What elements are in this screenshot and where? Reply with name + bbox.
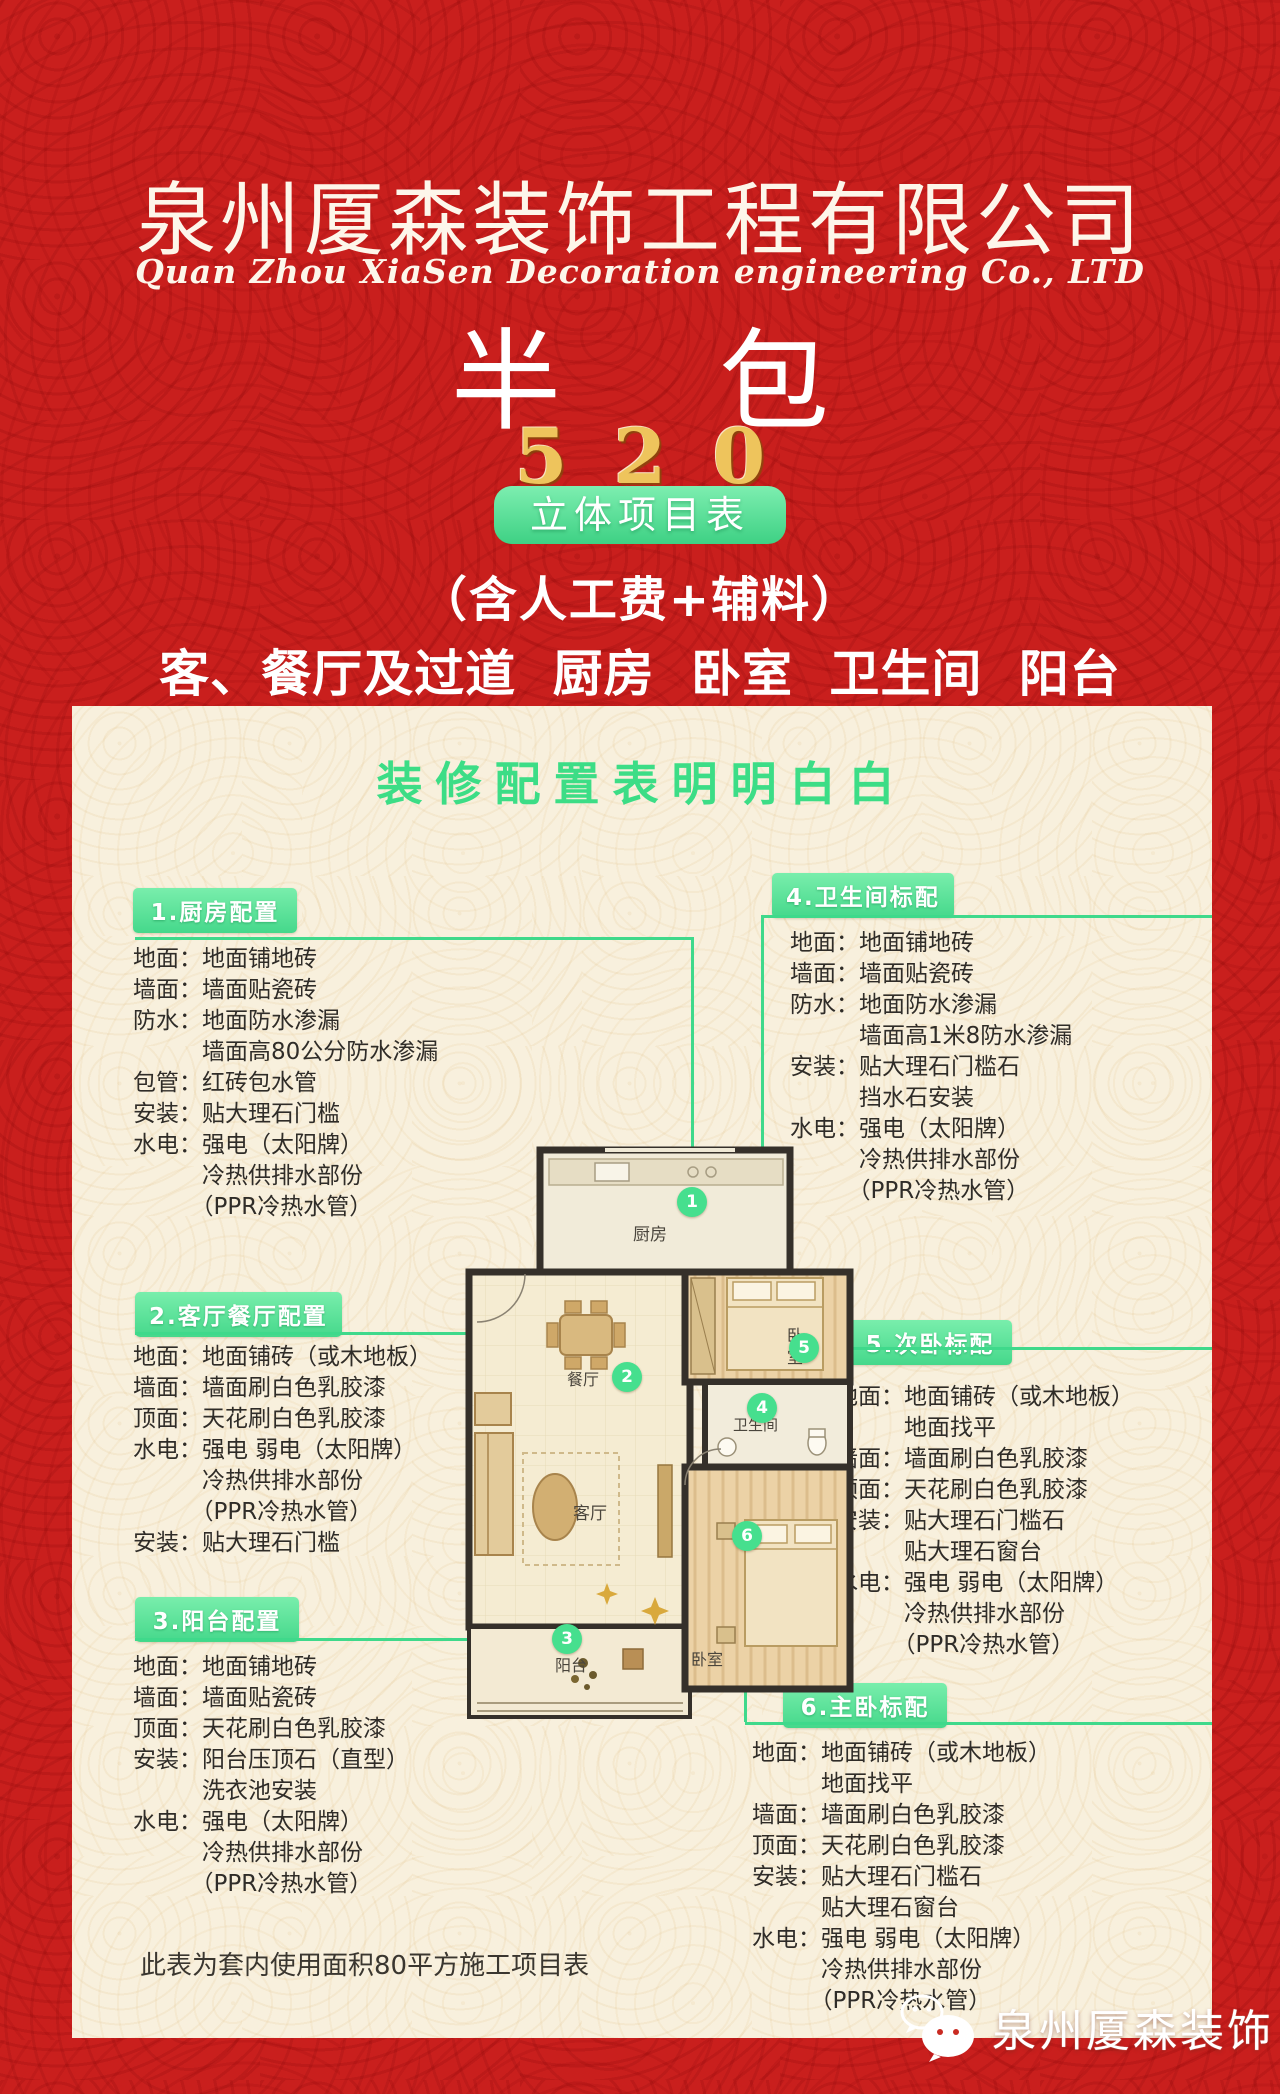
marker-1: 1 — [677, 1187, 707, 1217]
spec-line: 顶面：天花刷白色乳胶漆 — [752, 1831, 1051, 1862]
brand-row: 泉州厦森装饰 — [898, 1992, 1274, 2062]
connector-line-5 — [804, 1347, 1212, 1350]
section-bathroom-badge: 4.卫生间标配 — [772, 873, 954, 918]
spec-line: 冷热供排水部份 — [752, 1955, 1051, 1986]
connector-line-4 — [762, 915, 1212, 918]
spec-line: 冷热供排水部份 — [835, 1599, 1134, 1630]
project-table-badge: 立体项目表 — [0, 486, 1280, 544]
spec-line: 安装：贴大理石门槛 — [133, 1528, 432, 1559]
spec-line: 墙面：墙面贴瓷砖 — [790, 959, 1072, 990]
sofa — [475, 1433, 513, 1555]
coffee-table — [533, 1474, 577, 1540]
spec-line: 地面：地面铺砖（或木地板） — [752, 1738, 1051, 1769]
spec-line: 包管：红砖包水管 — [133, 1068, 438, 1099]
spec-line: 地面：地面铺砖（或木地板） — [133, 1342, 432, 1373]
rooms-line: 客、餐厅及过道 厨房 卧室 卫生间 阳台 — [0, 634, 1280, 706]
section-kitchen-specs: 地面：地面铺地砖 墙面：墙面贴瓷砖 防水：地面防水渗漏 墙面高80公分防水渗漏 … — [133, 944, 438, 1223]
spec-line: 洗衣池安装 — [133, 1776, 409, 1807]
spec-line: 地面：地面铺砖（或木地板） — [835, 1382, 1134, 1413]
spec-line: 顶面：天花刷白色乳胶漆 — [133, 1714, 409, 1745]
spec-line: （PPR冷热水管） — [133, 1497, 432, 1528]
spec-line: 安装：贴大理石门槛石 — [835, 1506, 1134, 1537]
marker-5: 5 — [789, 1333, 819, 1363]
card-title: 装修配置表明明白白 — [72, 748, 1212, 814]
room-label-bedroom1: 卧室 — [691, 1650, 723, 1669]
marker-6: 6 — [732, 1521, 762, 1551]
section-master-specs: 地面：地面铺砖（或木地板） 地面找平 墙面：墙面刷白色乳胶漆 顶面：天花刷白色乳… — [752, 1738, 1051, 2017]
spec-line: 墙面：墙面刷白色乳胶漆 — [752, 1800, 1051, 1831]
spec-line: 顶面：天花刷白色乳胶漆 — [133, 1404, 432, 1435]
spec-line: 地面：地面铺地砖 — [133, 1652, 409, 1683]
spec-line: 水电：强电（太阳牌） — [133, 1807, 409, 1838]
spec-line: 安装：贴大理石门槛石 — [752, 1862, 1051, 1893]
room-label-dining: 餐厅 — [567, 1370, 599, 1389]
section-bedroom2-specs: 地面：地面铺砖（或木地板） 地面找平 墙面：墙面刷白色乳胶漆 顶面：天花刷白色乳… — [835, 1382, 1134, 1661]
armchair — [475, 1393, 511, 1425]
spec-line: 冷热供排水部份 — [133, 1161, 438, 1192]
section-balcony-badge: 3.阳台配置 — [135, 1597, 299, 1642]
spec-line: 地面找平 — [835, 1413, 1134, 1444]
spec-line: （PPR冷热水管） — [835, 1630, 1134, 1661]
tv-cabinet — [658, 1465, 672, 1557]
wechat-icon — [898, 1992, 980, 2062]
spec-line: 水电：强电 弱电（太阳牌） — [835, 1568, 1134, 1599]
spec-line: 墙面高1米8防水渗漏 — [790, 1021, 1072, 1052]
config-card: 装修配置表明明白白 1.厨房配置 地面：地面铺地砖 墙面：墙面贴瓷砖 防水：地面… — [72, 706, 1212, 2038]
room-label-kitchen: 厨房 — [633, 1225, 667, 1245]
spec-line: 墙面高80公分防水渗漏 — [133, 1037, 438, 1068]
section-bathroom-badge-label: 4.卫生间标配 — [772, 873, 954, 918]
spec-line: 墙面：墙面刷白色乳胶漆 — [133, 1373, 432, 1404]
spec-line: 墙面：墙面贴瓷砖 — [133, 1683, 409, 1714]
poster: 泉州厦森装饰工程有限公司 Quan Zhou XiaSen Decoration… — [0, 0, 1280, 2094]
spec-line: 贴大理石窗台 — [835, 1537, 1134, 1568]
kitchen-counter — [549, 1159, 783, 1185]
spec-line: 安装：阳台压顶石（直型） — [133, 1745, 409, 1776]
marker-4: 4 — [747, 1393, 777, 1423]
planter — [623, 1649, 643, 1669]
floor-plan: 厨房 餐厅 卧 室 卫生间 客厅 卧室 阳台 — [455, 1135, 860, 1725]
includes-line: （含人工费+辅料） — [0, 560, 1280, 630]
spec-line: 挡水石安装 — [790, 1083, 1072, 1114]
spec-line: （PPR冷热水管） — [133, 1192, 438, 1223]
spec-line: 冷热供排水部份 — [133, 1466, 432, 1497]
section-living-badge: 2.客厅餐厅配置 — [135, 1292, 342, 1337]
room-label-balcony: 阳台 — [555, 1656, 587, 1675]
spec-line: 地面：地面铺地砖 — [133, 944, 438, 975]
spec-line: 地面：地面铺地砖 — [790, 928, 1072, 959]
spec-line: 安装：贴大理石门槛石 — [790, 1052, 1072, 1083]
spec-line: 安装：贴大理石门槛 — [133, 1099, 438, 1130]
section-kitchen-badge-label: 1.厨房配置 — [133, 888, 297, 933]
project-table-badge-label: 立体项目表 — [494, 486, 786, 544]
kitchen-sink — [595, 1163, 629, 1181]
spec-line: 水电：强电 弱电（太阳牌） — [133, 1435, 432, 1466]
bathroom-sink — [718, 1438, 736, 1456]
spec-line: 冷热供排水部份 — [133, 1838, 409, 1869]
spec-line: 防水：地面防水渗漏 — [790, 990, 1072, 1021]
section-balcony-specs: 地面：地面铺地砖 墙面：墙面贴瓷砖 顶面：天花刷白色乳胶漆 安装：阳台压顶石（直… — [133, 1652, 409, 1900]
spec-line: 墙面：墙面刷白色乳胶漆 — [835, 1444, 1134, 1475]
section-living-badge-label: 2.客厅餐厅配置 — [135, 1292, 342, 1337]
connector-line-1 — [135, 937, 692, 940]
section-living-specs: 地面：地面铺砖（或木地板） 墙面：墙面刷白色乳胶漆 顶面：天花刷白色乳胶漆 水电… — [133, 1342, 432, 1559]
spec-line: 防水：地面防水渗漏 — [133, 1006, 438, 1037]
spec-line: 顶面：天花刷白色乳胶漆 — [835, 1475, 1134, 1506]
section-bedroom2-badge: 5.次卧标配 — [848, 1320, 1012, 1365]
dining-table — [560, 1315, 612, 1355]
company-name-en: Quan Zhou XiaSen Decoration engineering … — [0, 252, 1280, 291]
room-label-living: 客厅 — [573, 1504, 607, 1524]
marker-3: 3 — [552, 1624, 582, 1654]
spec-line: 地面找平 — [752, 1769, 1051, 1800]
spec-line: 水电：强电（太阳牌） — [133, 1130, 438, 1161]
brand-name: 泉州厦森装饰 — [992, 1995, 1274, 2059]
spec-line: 贴大理石窗台 — [752, 1893, 1051, 1924]
section-bedroom2-badge-label: 5.次卧标配 — [848, 1320, 1012, 1365]
section-kitchen-badge: 1.厨房配置 — [133, 888, 297, 933]
spec-line: 水电：强电 弱电（太阳牌） — [752, 1924, 1051, 1955]
spec-line: （PPR冷热水管） — [133, 1869, 409, 1900]
marker-2: 2 — [612, 1362, 642, 1392]
spec-line: 墙面：墙面贴瓷砖 — [133, 975, 438, 1006]
section-balcony-badge-label: 3.阳台配置 — [135, 1597, 299, 1642]
footnote: 此表为套内使用面积80平方施工项目表 — [140, 1945, 589, 1982]
